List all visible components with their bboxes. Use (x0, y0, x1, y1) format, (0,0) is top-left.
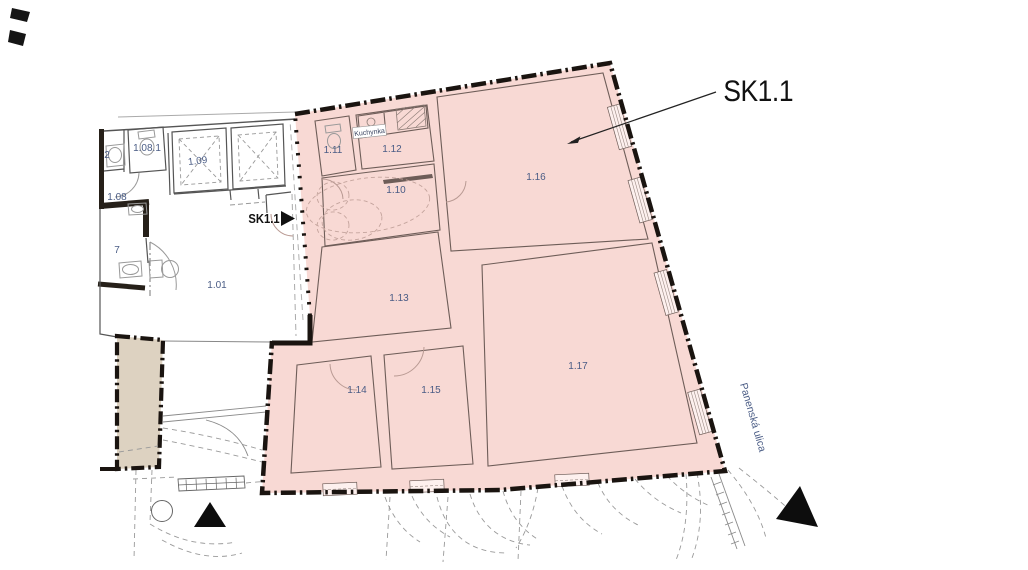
room-label-1081: 1.08.1 (133, 143, 161, 154)
adjacent-building (100, 336, 163, 469)
street-name-label: Panenská ulica (737, 382, 768, 454)
room-label-111: 1.11 (324, 145, 343, 156)
north-triangle-icon (194, 502, 226, 527)
column (152, 501, 173, 522)
room-label-112: 1.12 (382, 144, 402, 155)
street-edge-line (118, 112, 296, 117)
edge-mark (10, 8, 30, 22)
corridor-dashed-line (292, 194, 296, 336)
room-label-116: 1.16 (526, 172, 546, 183)
exterior-steps (152, 476, 246, 522)
room-label-110: 1.10 (386, 185, 406, 196)
north-triangle-icon (776, 486, 818, 527)
room-label-114: 1.14 (347, 385, 367, 396)
room-label-102: 2 (104, 150, 110, 161)
edge-mark (8, 30, 26, 46)
left-building (98, 112, 296, 342)
floor-plan-canvas: 2 1.08.1 1.09 1.08 7 1.01 1.11 1.12 1.10… (0, 0, 1028, 570)
thick-wall (98, 284, 145, 288)
room-label-113: 1.13 (389, 293, 409, 304)
room-label-101: 1.01 (207, 280, 227, 291)
door-swing (150, 242, 176, 290)
unit-callout-label: SK1.1 (723, 73, 793, 107)
entrance-marker-arrow-icon (281, 211, 295, 226)
entrance-marker-label: SK1.1 (248, 211, 280, 226)
room-label-117: 1.17 (568, 361, 588, 372)
elevator-shaft-2 (231, 124, 285, 189)
unit-sk11 (262, 63, 725, 496)
floor-plan-drawing: 2 1.08.1 1.09 1.08 7 1.01 1.11 1.12 1.10… (0, 0, 1028, 570)
washbasin-fixture (119, 261, 142, 278)
room-label-108: 1.08 (107, 192, 127, 203)
room-label-107: 7 (114, 245, 120, 256)
room-label-115: 1.15 (421, 385, 441, 396)
